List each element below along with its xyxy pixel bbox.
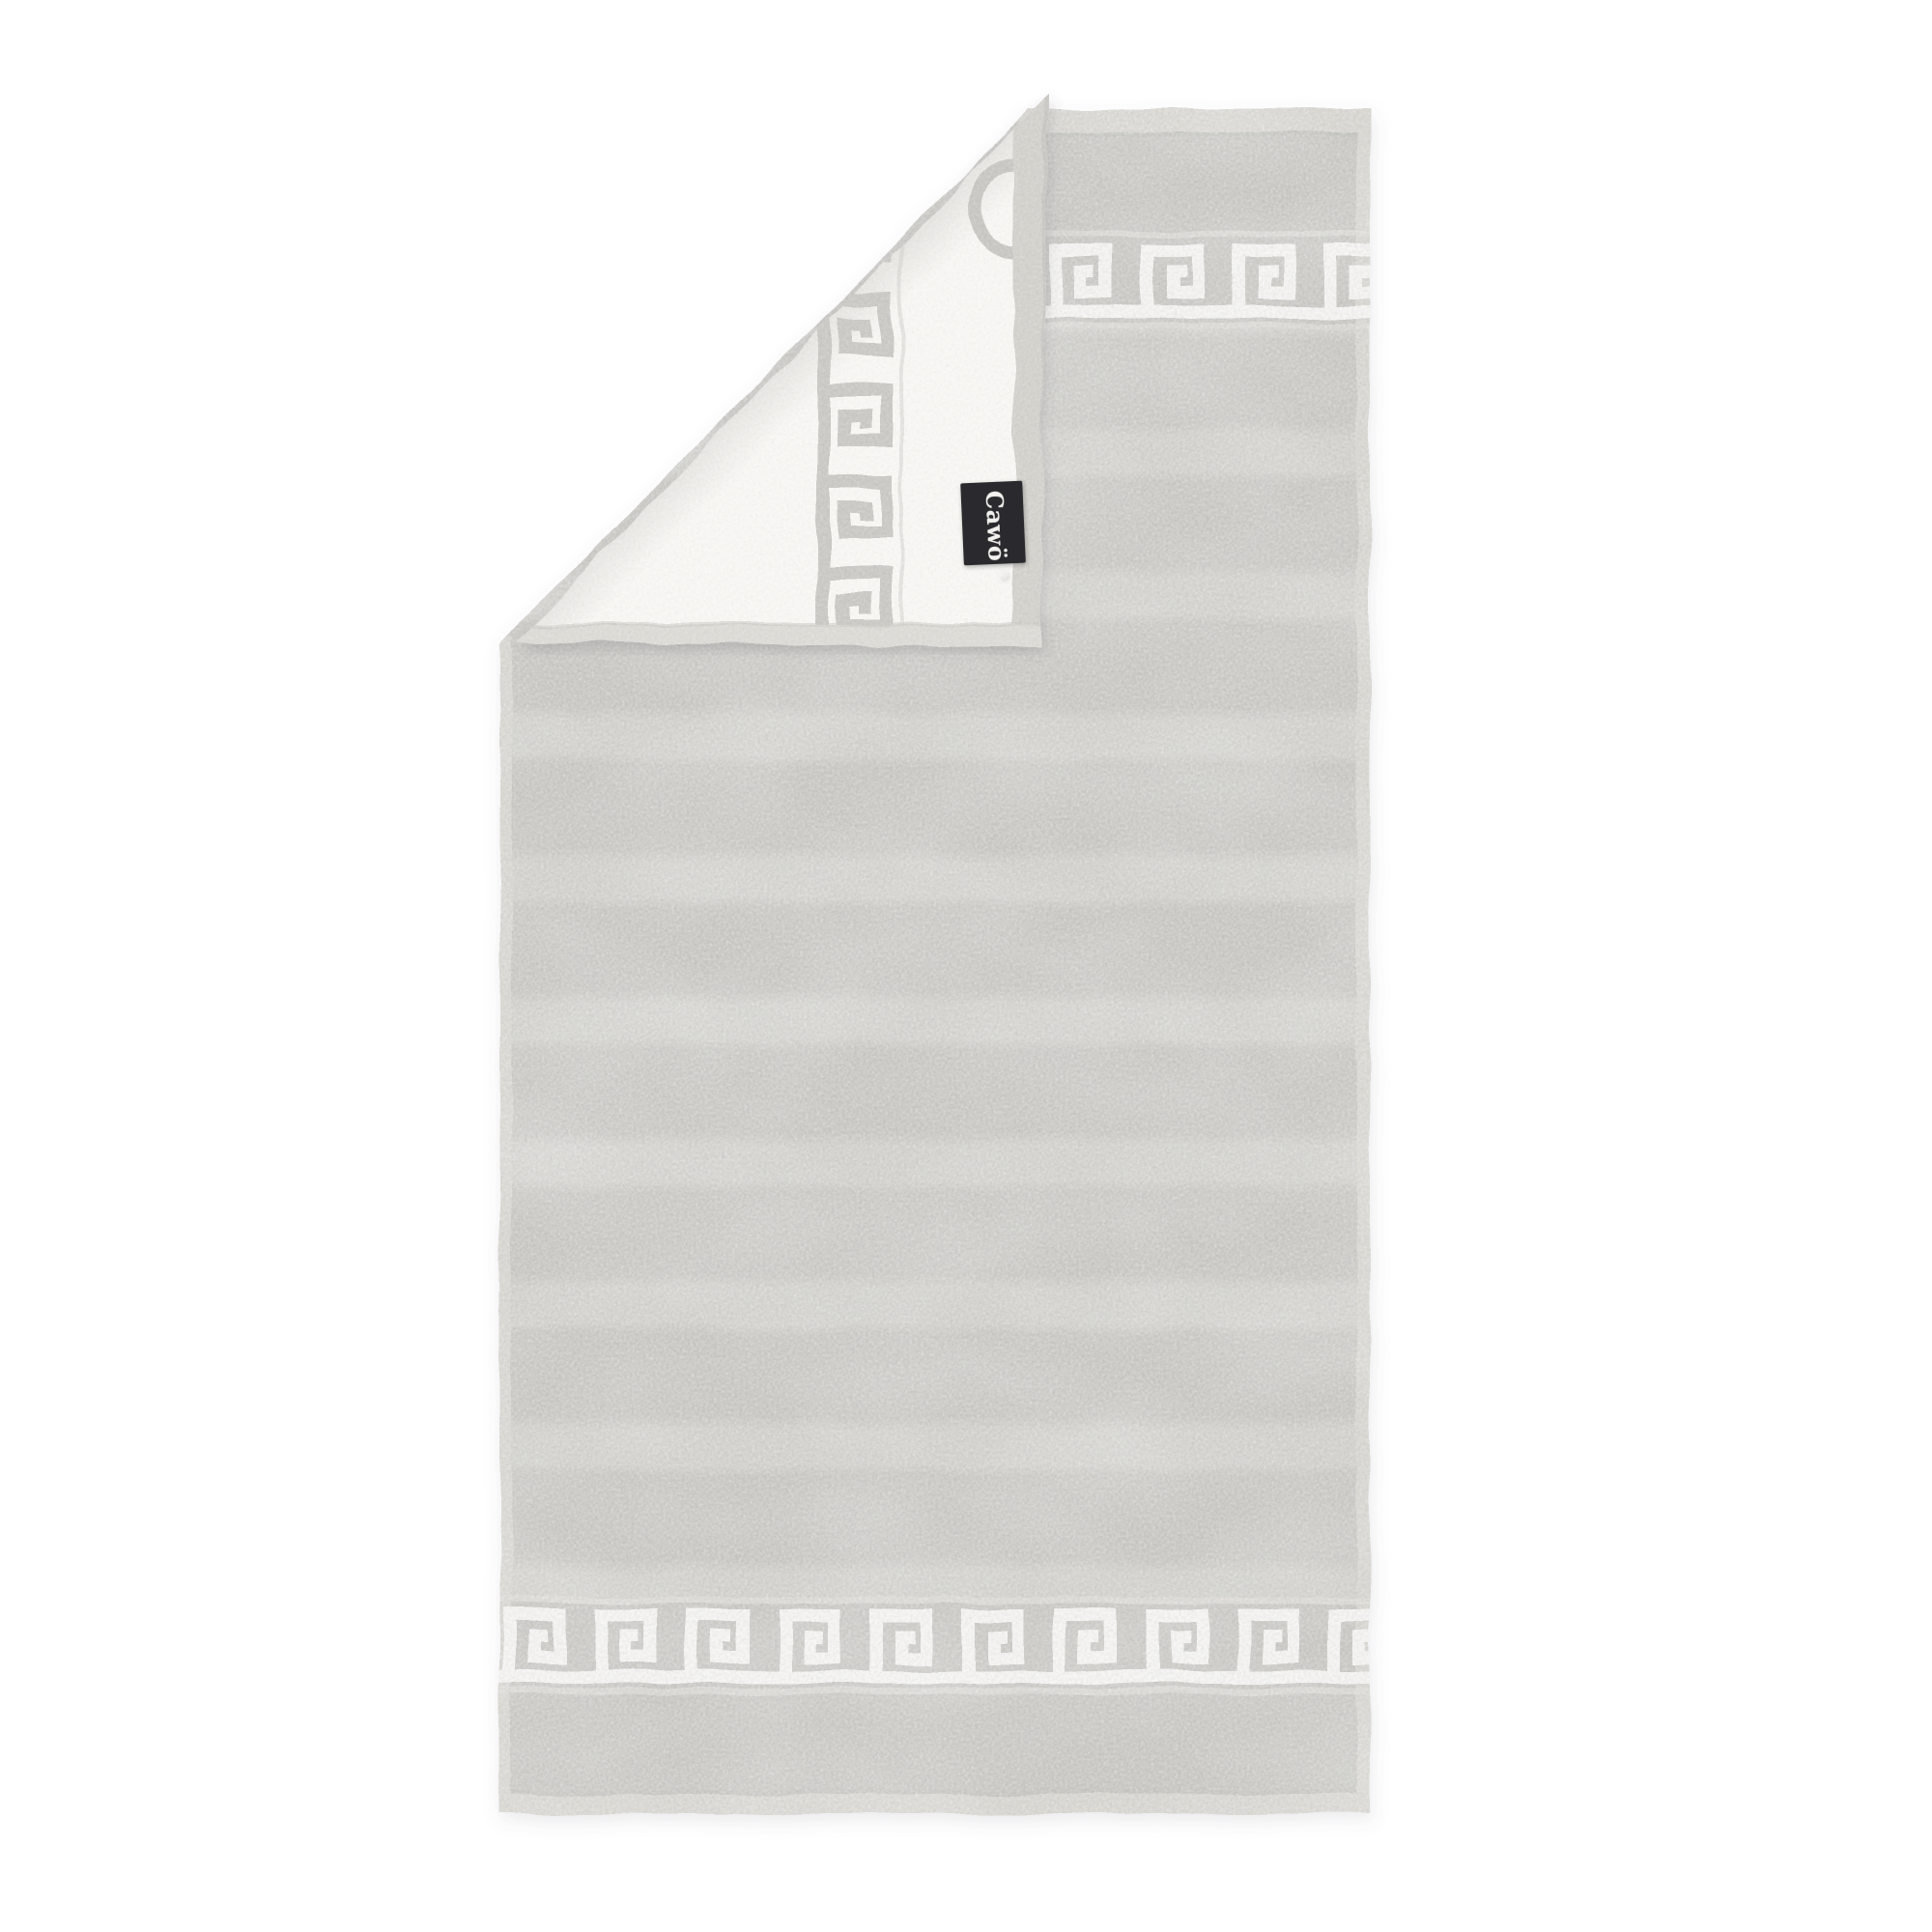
brand-label-text: Cawö ® (980, 490, 1012, 581)
product-photo: Cawö ® (0, 0, 1932, 1932)
towel-photo-canvas: Cawö ® (0, 0, 1932, 1932)
brand-name: Cawö (980, 490, 1011, 562)
registered-trademark-mark: ® (998, 571, 1008, 581)
